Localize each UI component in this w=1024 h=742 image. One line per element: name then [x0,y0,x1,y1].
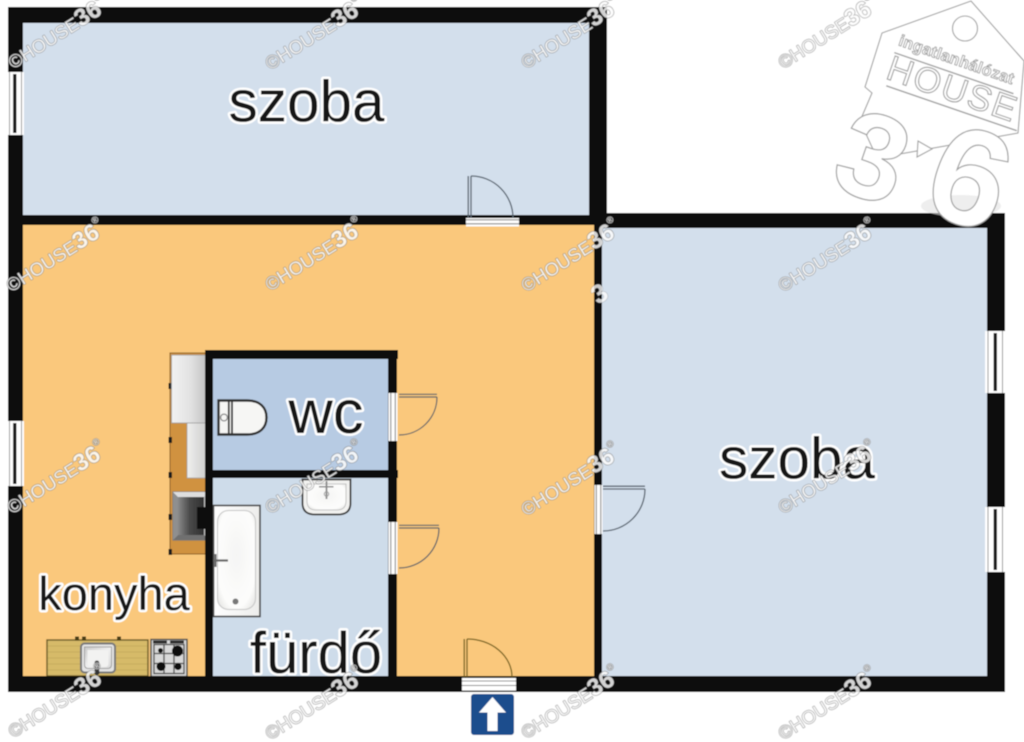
svg-text:szoba: szoba [228,70,385,135]
svg-text:fürdő: fürdő [250,621,382,686]
svg-text:konyha: konyha [38,567,190,620]
